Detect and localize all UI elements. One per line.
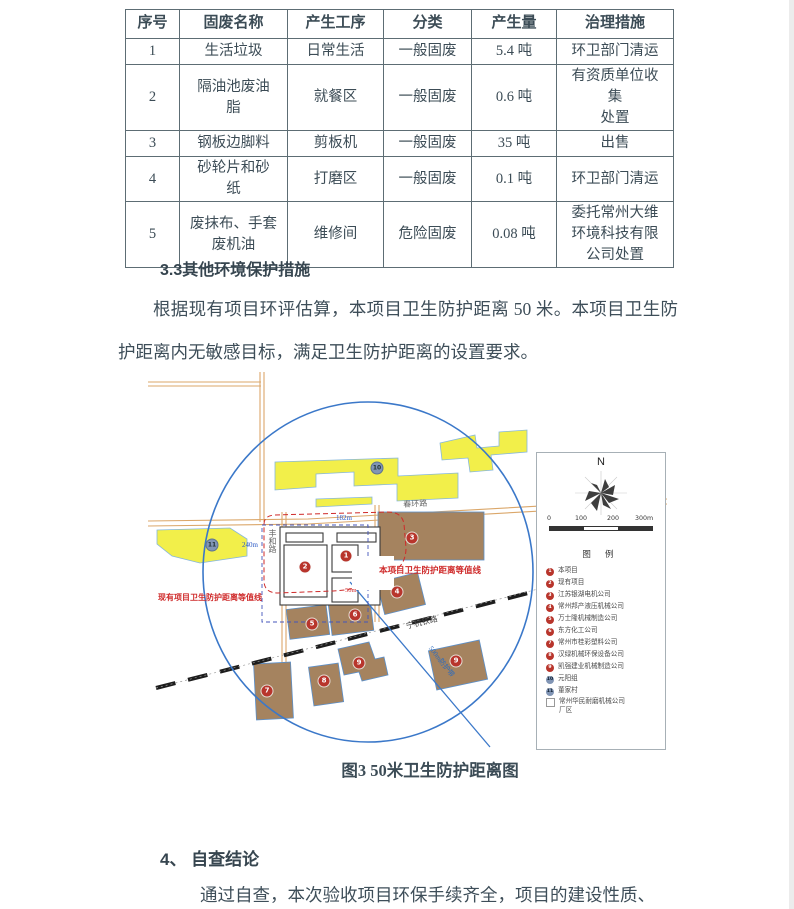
legend-label: 常州邦产液压机械公司: [558, 603, 624, 612]
legend-item: 2 现有项目: [546, 578, 584, 589]
table-row: 3 钢板边脚料 剪板机 一般固废 35 吨 出售: [126, 131, 674, 157]
legend-title: 图 例: [537, 548, 665, 560]
site-marker-4: 4: [392, 587, 403, 598]
legend-item: 10 元阳组: [546, 674, 578, 685]
legend-item: 8 汉绿机械环保设备公司: [546, 650, 624, 661]
north-label: N: [537, 456, 665, 468]
legend-marker: 9: [546, 664, 554, 672]
legend-marker: 11: [546, 688, 554, 696]
site-marker-9b: 9: [451, 656, 462, 667]
legend-item: 11 董家村: [546, 686, 578, 697]
legend-label: 凯强建业机械制造公司: [558, 663, 624, 672]
legend-item: 常州华民耐磨机械公司 厂区: [546, 698, 625, 716]
table-header-row: 序号 固废名称 产生工序 分类 产生量 治理措施: [126, 10, 674, 39]
road-label-north-south: 丰和路: [267, 529, 278, 553]
site-marker-2: 2: [300, 562, 311, 573]
site-marker-1: 1: [341, 551, 352, 562]
legend-item: 4 常州邦产液压机械公司: [546, 602, 624, 613]
scale-tick-200: 200: [607, 515, 619, 522]
col-header: 固废名称: [180, 10, 288, 39]
legend-label: 常州市桂彩塑料公司: [558, 639, 617, 648]
col-header: 产生工序: [288, 10, 384, 39]
legend-label: 现有项目: [558, 579, 584, 588]
legend-marker: [546, 698, 555, 707]
legend-label: 常州华民耐磨机械公司 厂区: [559, 698, 625, 715]
section-3-3-paragraph: 根据现有项目环评估算，本项目卫生防护距离 50 米。本项目卫生防护距离内无敏感目…: [118, 288, 678, 374]
col-header: 序号: [126, 10, 180, 39]
site-marker-10: 10: [372, 463, 383, 474]
figure-caption: 图3 50米卫生防护距离图: [119, 757, 679, 781]
legend-marker: 10: [546, 676, 554, 684]
legend-marker: 8: [546, 652, 554, 660]
wind-rose-icon: [571, 469, 631, 517]
legend-marker: 2: [546, 580, 554, 588]
map-legend-panel: N 0 100 200 300m 图 例 1 本项目 2 现有项目 3: [536, 452, 666, 750]
legend-label: 江苏银湖电机公司: [558, 591, 611, 600]
page-edge-shadow: [789, 0, 794, 909]
dim-label-50m: 50m: [345, 587, 357, 594]
legend-marker: 3: [546, 592, 554, 600]
legend-label: 元阳组: [558, 675, 578, 684]
legend-marker: 6: [546, 628, 554, 636]
legend-item: 7 常州市桂彩塑料公司: [546, 638, 617, 649]
section-3-3-heading: 3.3其他环境保护措施: [160, 256, 310, 280]
legend-label: 汉绿机械环保设备公司: [558, 651, 624, 660]
project-contour-label: 本项目卫生防护距离等值线: [379, 564, 481, 576]
legend-marker: 1: [546, 568, 554, 576]
site-marker-7: 7: [262, 686, 273, 697]
legend-label: 董家村: [558, 687, 578, 696]
col-header: 产生量: [472, 10, 557, 39]
site-marker-8: 8: [319, 676, 330, 687]
document-page: 序号 固废名称 产生工序 分类 产生量 治理措施 1 生活垃圾 日常生活 一般固…: [0, 0, 794, 909]
dim-label-240m: 240m: [242, 541, 258, 549]
road-label-east-west: 春环路: [403, 498, 428, 510]
legend-item: 3 江苏银湖电机公司: [546, 590, 611, 601]
site-marker-9: 9: [354, 658, 365, 669]
scale-tick-100: 100: [575, 515, 587, 522]
scale-bar: [549, 526, 653, 531]
site-marker-5: 5: [307, 619, 318, 630]
legend-marker: 7: [546, 640, 554, 648]
table-row: 2 隔油池废油 脂 就餐区 一般固废 0.6 吨 有资质单位收 集 处置: [126, 65, 674, 131]
legend-item: 5 万士隆机械制造公司: [546, 614, 617, 625]
legend-item: 9 凯强建业机械制造公司: [546, 662, 624, 673]
legend-label: 万士隆机械制造公司: [558, 615, 617, 624]
scale-tick-300: 300m: [635, 515, 653, 522]
site-marker-6: 6: [350, 610, 361, 621]
col-header: 分类: [384, 10, 472, 39]
legend-item: 1 本项目: [546, 566, 578, 577]
legend-label: 本项目: [558, 567, 578, 576]
legend-label: 东方化工公司: [558, 627, 598, 636]
site-marker-11: 11: [207, 540, 218, 551]
dim-label-182m: 182m: [336, 514, 352, 522]
existing-contour-label: 现有项目卫生防护距离等值线: [158, 592, 262, 603]
figure-3-map: 春环路 丰和路 宁杭铁路 500m防护带 本项目卫生防护距离等值线 现有项目卫生…: [148, 372, 668, 764]
site-marker-3: 3: [407, 533, 418, 544]
legend-marker: 4: [546, 604, 554, 612]
legend-item: 6 东方化工公司: [546, 626, 598, 637]
solid-waste-table: 序号 固废名称 产生工序 分类 产生量 治理措施 1 生活垃圾 日常生活 一般固…: [125, 9, 674, 268]
col-header: 治理措施: [557, 10, 674, 39]
table-row: 4 砂轮片和砂 纸 打磨区 一般固废 0.1 吨 环卫部门清运: [126, 157, 674, 202]
scale-tick-0: 0: [547, 515, 551, 522]
legend-marker: 5: [546, 616, 554, 624]
section-4-heading: 4、 自查结论: [160, 845, 259, 870]
table-row: 1 生活垃圾 日常生活 一般固废 5.4 吨 环卫部门清运: [126, 39, 674, 65]
section-4-paragraph: 通过自查，本次验收项目环保手续齐全，项目的建设性质、: [118, 874, 684, 909]
